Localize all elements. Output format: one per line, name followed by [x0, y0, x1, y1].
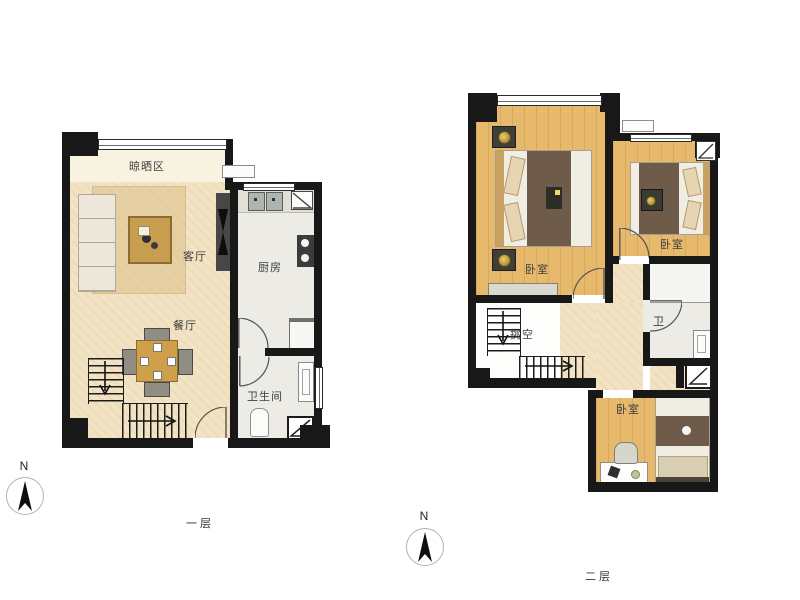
- wall: [643, 332, 650, 358]
- wall: [633, 390, 710, 398]
- nightstand: [492, 126, 516, 148]
- stairs-right-arrow: [525, 360, 579, 372]
- hall-floor: [613, 264, 643, 303]
- wall: [605, 260, 613, 303]
- window: [243, 183, 295, 191]
- wall: [649, 256, 710, 264]
- room-label-void: 挑空: [498, 326, 546, 342]
- wall: [476, 295, 572, 303]
- fridge-diagonal: [292, 192, 312, 209]
- wall: [62, 132, 70, 448]
- desk-chair: [614, 442, 638, 464]
- floor2-plan: 卧室 卧室 卧室 挑空 卫: [468, 93, 720, 495]
- north-label: N: [412, 509, 436, 523]
- wall: [230, 190, 238, 438]
- room-label-kitchen: 厨房: [252, 259, 288, 275]
- room-label-bedroom-main: 卧室: [513, 261, 561, 277]
- wall: [596, 390, 603, 398]
- corner-unit-diagonal: [697, 142, 715, 160]
- washing-machine: [289, 318, 315, 349]
- north-arrow-icon: [7, 478, 43, 514]
- hall-floor: [596, 303, 643, 390]
- bed-second: [630, 162, 712, 235]
- dining-chair: [144, 382, 170, 397]
- bed-main: [495, 150, 592, 247]
- window: [98, 139, 227, 150]
- door-arc-kitchen: [238, 318, 269, 349]
- door-arc-bedroom2: [619, 228, 650, 260]
- room-label-drying-area: 晾晒区: [117, 158, 177, 174]
- shower-tray: [693, 330, 711, 359]
- bath2-upper: [650, 264, 710, 303]
- floor1-plan: 晾晒区 客厅 厨房 餐厅 卫生间: [62, 130, 330, 448]
- stove: [297, 235, 314, 267]
- dining-chair: [122, 349, 137, 375]
- compass-floor1: [6, 477, 44, 515]
- room-label-dining-room: 餐厅: [167, 317, 203, 333]
- bed-third: [655, 395, 710, 485]
- fridge: [291, 191, 313, 210]
- door-arc-bathroom: [239, 356, 270, 387]
- page: { "floor1": { "caption": "一层", "rooms": …: [0, 0, 800, 600]
- floor2-caption: 二层: [569, 568, 629, 584]
- coffee-table: [128, 216, 172, 264]
- wall: [468, 93, 476, 388]
- room-label-bedroom-third: 卧室: [604, 401, 652, 417]
- ac-unit: [622, 120, 654, 132]
- compass-floor2: [406, 528, 444, 566]
- room-label-bathroom: 卫生间: [239, 388, 291, 404]
- corner-unit: [696, 141, 716, 161]
- wall: [605, 103, 613, 260]
- kitchen-sink: [266, 192, 283, 211]
- wall: [613, 256, 619, 264]
- wall: [62, 418, 88, 448]
- north-arrow-icon: [407, 529, 443, 565]
- wall: [588, 390, 596, 492]
- window: [315, 367, 323, 409]
- wall: [676, 366, 684, 388]
- stairs-right-arrow: [128, 415, 182, 427]
- kitchen-sink: [248, 192, 265, 211]
- window: [497, 95, 602, 106]
- bath-sink: [298, 362, 314, 402]
- north-label: N: [12, 459, 36, 473]
- dining-table: [136, 340, 178, 382]
- tv-cabinet: [216, 193, 230, 271]
- room-label-bath2: 卫: [647, 313, 671, 329]
- wall: [265, 348, 314, 356]
- wall: [468, 368, 490, 388]
- door-arc-bedroom1: [573, 268, 605, 300]
- wall: [710, 153, 718, 492]
- wall: [643, 264, 650, 300]
- window: [630, 134, 692, 142]
- door-arc-entry: [195, 407, 227, 438]
- washer-diagonal: [687, 366, 710, 387]
- wall: [588, 482, 718, 492]
- stairs-down-arrow: [99, 361, 111, 401]
- floor1-caption: 一层: [170, 515, 230, 531]
- room-label-bedroom-second: 卧室: [648, 236, 696, 252]
- washing-machine: [685, 364, 712, 389]
- toilet: [250, 408, 269, 437]
- sofa: [78, 194, 116, 292]
- wall: [612, 112, 620, 141]
- dining-chair: [178, 349, 193, 375]
- room-label-living-room: 客厅: [177, 248, 213, 264]
- ac-unit: [222, 165, 255, 178]
- tv-icon: [216, 193, 230, 271]
- wall: [300, 425, 330, 448]
